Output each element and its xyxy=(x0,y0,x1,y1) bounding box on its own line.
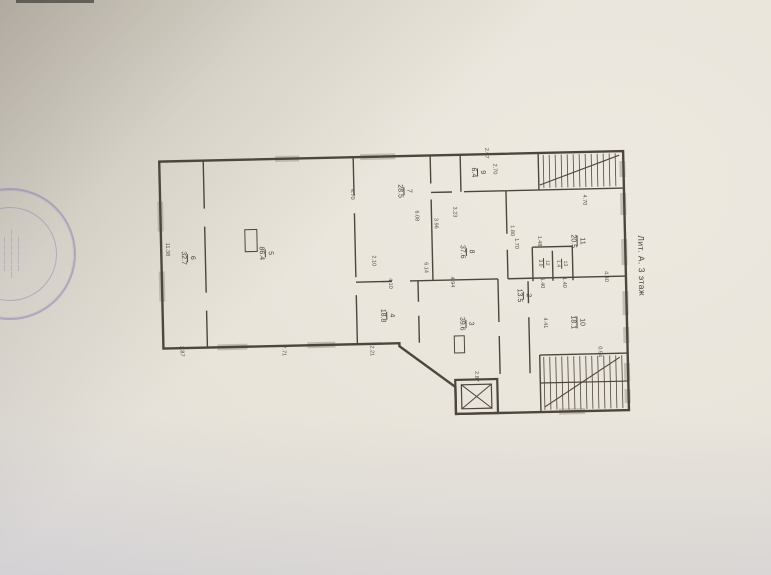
dimension-label: 1.40 xyxy=(561,277,567,288)
dimension-label: 3.96 xyxy=(433,218,439,229)
room-label: 632.7 xyxy=(179,251,196,265)
photo-of-floor-plan-document: { "page": { "paper_color": "#e7e3d9", "l… xyxy=(0,0,771,575)
dimension-label: 1.80 xyxy=(509,225,515,236)
room-label: 213.5 xyxy=(515,288,532,302)
room-label: 586.4 xyxy=(257,246,274,260)
dimension-label: 2.87 xyxy=(178,346,184,357)
dimension-label: 0.94 xyxy=(597,346,603,357)
room-label: 339.6 xyxy=(457,317,474,331)
room-label: 418.8 xyxy=(378,308,395,322)
stamp-text: ————— ——————— ————— xyxy=(0,230,21,279)
staircase-bottom xyxy=(540,355,629,410)
room-label: 837.6 xyxy=(458,245,475,259)
room-label: 1018.1 xyxy=(568,315,585,329)
staircase-top xyxy=(539,153,620,188)
dimension-label: 2.10 xyxy=(370,255,376,266)
dimension-label: 4.70 xyxy=(581,195,587,206)
dimension-label: 4.40 xyxy=(603,271,609,282)
dimension-label: 4.41 xyxy=(542,317,548,328)
dimension-label: 2.21 xyxy=(368,345,374,356)
photo-edge-artifact xyxy=(16,0,94,3)
dimension-label: 1.48 xyxy=(536,236,542,247)
stamp-inner-ring: ————— ——————— ————— xyxy=(0,207,57,301)
floor-title: Лит. А. 3 этаж xyxy=(636,235,647,296)
floor-plan-drawing: 632.7 586.4 728.5 96.4 837.6 1120.5 123.… xyxy=(153,130,664,433)
dimension-label: 4.10 xyxy=(387,278,393,289)
dimension-label: 1.40 xyxy=(539,278,545,289)
dimension-label: 7.71 xyxy=(280,345,286,356)
dimension-label: 4.94 xyxy=(449,277,455,288)
elevator-shaft xyxy=(455,379,498,414)
room-label: 96.4 xyxy=(469,167,486,177)
dimension-label: 2.70 xyxy=(491,164,497,175)
room-label: 131.4 xyxy=(555,259,568,269)
dimension-label: 1.70 xyxy=(513,238,519,249)
dimension-label: 2.87 xyxy=(473,371,479,382)
dimension-label: 3.23 xyxy=(451,207,457,218)
dimension-label: 2.07 xyxy=(483,148,489,159)
round-stamp: ————— ——————— ————— xyxy=(0,188,76,320)
room-label: 1120.5 xyxy=(568,234,585,248)
dimension-label: 11.38 xyxy=(164,243,170,256)
dimension-label: 6.08 xyxy=(413,210,419,221)
dimension-label: 6.14 xyxy=(423,262,429,273)
dimension-label: 4.70 xyxy=(349,189,355,200)
floor-plan-walls xyxy=(153,130,664,433)
room-label: 728.5 xyxy=(395,184,412,198)
room-label: 123.0 xyxy=(537,258,550,268)
outer-walls xyxy=(159,151,629,420)
